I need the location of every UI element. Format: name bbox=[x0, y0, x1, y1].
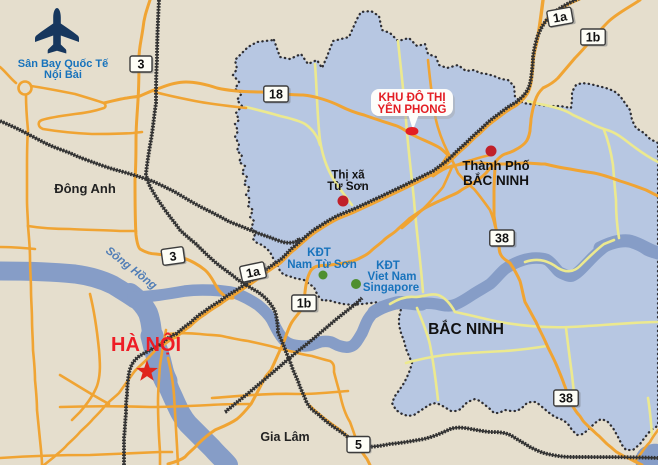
svg-text:BẮC NINH: BẮC NINH bbox=[463, 173, 529, 188]
svg-text:3: 3 bbox=[138, 58, 145, 72]
svg-text:Thành Phố: Thành Phố bbox=[462, 158, 529, 173]
svg-text:KHU ĐÔ THỊ: KHU ĐÔ THỊ bbox=[378, 91, 445, 104]
svg-text:18: 18 bbox=[269, 88, 283, 102]
svg-text:BẮC NINH: BẮC NINH bbox=[428, 320, 504, 338]
svg-text:5: 5 bbox=[355, 438, 362, 452]
svg-text:Singapore: Singapore bbox=[363, 282, 419, 294]
svg-text:Thị xã: Thị xã bbox=[331, 170, 365, 182]
svg-text:Từ Sơn: Từ Sơn bbox=[327, 181, 368, 193]
svg-text:1b: 1b bbox=[586, 31, 601, 45]
svg-text:1b: 1b bbox=[297, 297, 312, 311]
svg-text:Nội Bài: Nội Bài bbox=[44, 69, 82, 81]
svg-text:Nam Từ Sơn: Nam Từ Sơn bbox=[287, 259, 357, 271]
svg-text:38: 38 bbox=[559, 392, 573, 406]
svg-text:KĐT: KĐT bbox=[307, 247, 331, 259]
svg-text:YÊN PHONG: YÊN PHONG bbox=[377, 103, 446, 116]
svg-text:Gia Lâm: Gia Lâm bbox=[260, 430, 309, 444]
svg-text:38: 38 bbox=[495, 232, 509, 246]
svg-text:HÀ NỘI: HÀ NỘI bbox=[111, 332, 181, 356]
svg-text:Đông Anh: Đông Anh bbox=[54, 181, 116, 196]
